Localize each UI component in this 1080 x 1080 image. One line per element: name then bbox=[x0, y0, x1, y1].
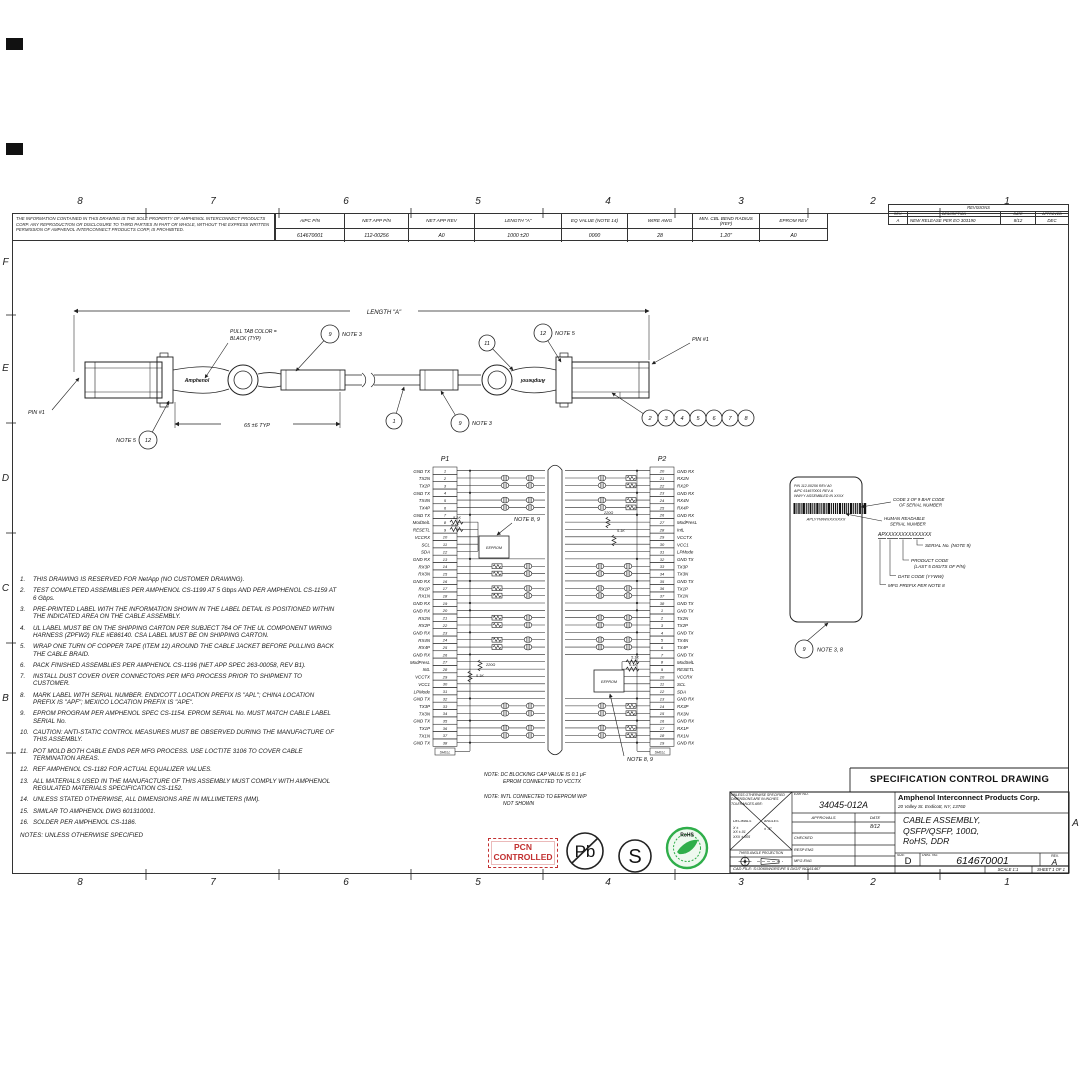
svg-text:1: 1 bbox=[661, 608, 663, 613]
svg-text:LPMode: LPMode bbox=[414, 689, 431, 694]
p1-pin-row: 33TX3P bbox=[419, 702, 457, 709]
p1-pin-row: 19GND RX bbox=[413, 599, 457, 606]
svg-text:3: 3 bbox=[661, 623, 664, 628]
svg-text:GND RX: GND RX bbox=[413, 557, 431, 562]
svg-text:IntL: IntL bbox=[423, 667, 431, 672]
zone-label-left: B bbox=[0, 691, 11, 705]
svg-text:3: 3 bbox=[444, 483, 447, 488]
svg-text:GND RX: GND RX bbox=[413, 653, 431, 658]
zone-label-right: A bbox=[1070, 816, 1080, 830]
p1-pin-row: 34TX3N bbox=[419, 710, 457, 717]
p1-pin-row: 22RX2P bbox=[419, 621, 457, 628]
svg-text:ModSelL: ModSelL bbox=[677, 660, 695, 665]
svg-text:6: 6 bbox=[661, 645, 664, 650]
p1-pin-row: 3TX2P bbox=[419, 482, 457, 489]
svg-text:RESETL: RESETL bbox=[677, 667, 695, 672]
tb-title-lines: CABLE ASSEMBLY, QSFP/QSFP, 100Ω, RoHS, D… bbox=[903, 815, 1067, 852]
p1-pin-row: 1GND TX bbox=[413, 467, 457, 474]
svg-text:VCC1: VCC1 bbox=[418, 682, 430, 687]
tb-approvals: APPROVALS bbox=[792, 815, 855, 822]
balloon-item-9: 9NOTE 3 bbox=[441, 391, 493, 432]
svg-text:14: 14 bbox=[660, 704, 665, 709]
svg-text:GND RX: GND RX bbox=[677, 491, 695, 496]
svg-text:22: 22 bbox=[442, 623, 448, 628]
p1-pin-row: 24RX4N bbox=[418, 636, 457, 643]
svg-text:GND TX: GND TX bbox=[413, 741, 431, 746]
svg-text:17: 17 bbox=[443, 586, 448, 591]
svg-text:5.1K: 5.1K bbox=[617, 529, 625, 533]
svg-text:TX2N: TX2N bbox=[419, 476, 431, 481]
svg-text:10: 10 bbox=[443, 535, 448, 540]
svg-text:34: 34 bbox=[660, 571, 665, 576]
zone-label-left: C bbox=[0, 581, 11, 595]
svg-text:19: 19 bbox=[660, 741, 665, 746]
p1-pin-row: 15RX3N bbox=[418, 570, 457, 577]
zone-label-bottom: 1 bbox=[999, 876, 1015, 889]
svg-text:NOTE 5: NOTE 5 bbox=[116, 438, 137, 444]
svg-text:GND RX: GND RX bbox=[413, 630, 431, 635]
tb-angles: ANGLES bbox=[764, 820, 791, 825]
svg-text:GND TX: GND TX bbox=[677, 557, 695, 562]
p1-pin-row: 11SCL bbox=[421, 541, 457, 548]
svg-text:GND RX: GND RX bbox=[413, 608, 431, 613]
svg-text:RX4N: RX4N bbox=[677, 498, 690, 503]
svg-text:4: 4 bbox=[444, 491, 447, 496]
tb-scale: SCALE 1:1 bbox=[986, 867, 1030, 873]
p1-pin-row: 31LPMode bbox=[414, 688, 457, 695]
balloon-item-3: 3 bbox=[658, 410, 674, 426]
svg-text:P1: P1 bbox=[441, 456, 450, 463]
svg-text:GND RX: GND RX bbox=[677, 469, 695, 474]
svg-text:RX4P: RX4P bbox=[419, 645, 431, 650]
svg-text:TX4P: TX4P bbox=[677, 645, 688, 650]
svg-text:RX3P: RX3P bbox=[677, 704, 689, 709]
p1-pin-row: 17RX1P bbox=[419, 585, 457, 592]
svg-text:TX4N: TX4N bbox=[677, 638, 689, 643]
svg-text:TX2P: TX2P bbox=[419, 483, 430, 488]
svg-text:4: 4 bbox=[680, 416, 683, 422]
svg-text:GND TX: GND TX bbox=[413, 491, 431, 496]
svg-text:38: 38 bbox=[443, 741, 448, 746]
svg-text:NOTE 8, 9: NOTE 8, 9 bbox=[514, 517, 540, 523]
p1-pin-row: 16GND RX bbox=[413, 577, 457, 584]
svg-text:TX1N: TX1N bbox=[419, 733, 431, 738]
svg-text:PIN #1: PIN #1 bbox=[28, 410, 45, 416]
zone-label-bottom: 2 bbox=[865, 876, 881, 889]
svg-text:24: 24 bbox=[442, 638, 448, 643]
p1-pin-row: 12SDA bbox=[421, 548, 457, 555]
svg-text:34: 34 bbox=[443, 711, 448, 716]
p2-pin-row: 17RX1P37TX1N18RX1N38GND TX19GND RXSHELLS… bbox=[413, 477, 1069, 873]
svg-text:LENGTH "A": LENGTH "A" bbox=[367, 310, 402, 316]
balloon-item-8: 8 bbox=[738, 410, 754, 426]
svg-text:Amphenol: Amphenol bbox=[520, 377, 546, 383]
svg-text:RX3N: RX3N bbox=[418, 572, 431, 577]
zone-label-left: D bbox=[0, 471, 11, 485]
svg-text:5.1K: 5.1K bbox=[631, 656, 639, 660]
svg-text:1: 1 bbox=[392, 419, 395, 425]
svg-text:EEPROM: EEPROM bbox=[486, 546, 503, 550]
zone-label-bottom: 3 bbox=[733, 876, 749, 889]
svg-text:35: 35 bbox=[443, 718, 448, 723]
p1-pin-row: 4GND TX bbox=[413, 489, 457, 496]
svg-text:RX1N: RX1N bbox=[677, 733, 690, 738]
svg-text:7: 7 bbox=[661, 652, 664, 657]
drawing-sheet: THE INFORMATION CONTAINED IN THIS DRAWIN… bbox=[0, 0, 1080, 1080]
svg-text:32: 32 bbox=[660, 557, 665, 562]
svg-text:GND RX: GND RX bbox=[677, 741, 695, 746]
p2-pin-row: 11SCL31LPMode12SDA32GND TX13GND RX33TX3P… bbox=[413, 477, 1069, 873]
svg-text:TX4P: TX4P bbox=[419, 506, 430, 511]
svg-text:VCC1: VCC1 bbox=[677, 542, 689, 547]
svg-text:SCL: SCL bbox=[677, 682, 686, 687]
svg-text:33: 33 bbox=[660, 564, 665, 569]
svg-text:12: 12 bbox=[660, 689, 665, 694]
svg-text:27: 27 bbox=[659, 520, 665, 525]
svg-text:11: 11 bbox=[484, 341, 490, 347]
p2-pin-row: 19GND RXSHELLSHELLNOTE: DC BLOCKING CAP … bbox=[435, 739, 695, 807]
svg-text:NOTE: INTL CONNECTED TO EEPRO: NOTE: INTL CONNECTED TO EEPROM W/P bbox=[484, 794, 587, 800]
svg-text:13: 13 bbox=[443, 557, 448, 562]
svg-text:18: 18 bbox=[443, 594, 448, 599]
svg-text:NOTE 3: NOTE 3 bbox=[342, 332, 363, 338]
svg-text:P2: P2 bbox=[658, 456, 667, 463]
p1-pin-row: 32GND TX bbox=[413, 695, 457, 702]
svg-text:9: 9 bbox=[328, 332, 331, 338]
svg-text:GND RX: GND RX bbox=[413, 601, 431, 606]
svg-text:TX3P: TX3P bbox=[677, 564, 688, 569]
svg-text:TX1N: TX1N bbox=[677, 594, 689, 599]
svg-text:GND TX: GND TX bbox=[677, 601, 695, 606]
svg-text:16: 16 bbox=[443, 579, 448, 584]
p1-pin-row: 28IntL bbox=[423, 665, 457, 672]
p2-pin-row: 9RESETL29VCCTX10VCCRX30VCC111SCL31LPMode… bbox=[413, 477, 1069, 873]
tb-row-mfg: MFG ENG bbox=[794, 859, 839, 866]
zone-label-left: E bbox=[0, 361, 11, 375]
svg-text:220Ω: 220Ω bbox=[485, 663, 495, 667]
p2-pin-row: 13GND RX33TX3P14RX3P34TX3N15RX3N35GND TX… bbox=[413, 477, 1069, 873]
svg-text:TX1P: TX1P bbox=[677, 586, 688, 591]
svg-text:ModPresL: ModPresL bbox=[677, 520, 698, 525]
svg-text:1: 1 bbox=[444, 469, 446, 474]
svg-text:PIN #1: PIN #1 bbox=[692, 337, 709, 343]
svg-text:18: 18 bbox=[660, 733, 665, 738]
p1-pin-row: 20GND RX bbox=[413, 607, 457, 614]
svg-text:21: 21 bbox=[659, 476, 664, 481]
svg-text:29: 29 bbox=[442, 674, 448, 679]
svg-text:TX2P: TX2P bbox=[677, 623, 688, 628]
svg-text:TX4N: TX4N bbox=[419, 498, 431, 503]
line-art: LENGTH "A"AmphenolAmphenol65 ±6 TYPPIN #… bbox=[0, 0, 1080, 1080]
p1-pin-row: 14RX3P bbox=[419, 563, 457, 570]
tb-date: 8/12 bbox=[855, 824, 895, 833]
svg-text:PULL TAB COLOR =: PULL TAB COLOR = bbox=[230, 329, 277, 335]
svg-text:RX2N: RX2N bbox=[677, 476, 690, 481]
svg-text:SERIAL No. (NOTE 9): SERIAL No. (NOTE 9) bbox=[925, 543, 971, 548]
zone-label-top: 6 bbox=[338, 195, 354, 208]
svg-text:9: 9 bbox=[802, 647, 805, 653]
svg-text:RX3P: RX3P bbox=[419, 564, 431, 569]
svg-text:15: 15 bbox=[443, 571, 448, 576]
p1-pin-row: 30VCC1 bbox=[418, 680, 457, 687]
zone-label-top: 2 bbox=[865, 195, 881, 208]
svg-text:9: 9 bbox=[444, 527, 447, 532]
svg-text:VCCTX: VCCTX bbox=[415, 675, 431, 680]
svg-text:GND TX: GND TX bbox=[413, 469, 431, 474]
p2-pin-row: 12SDA32GND TX13GND RX33TX3P14RX3P34TX3N1… bbox=[413, 477, 1069, 873]
tb-tol-header: UNLESS OTHERWISE SPECIFIED DIMENSIONS AR… bbox=[731, 793, 791, 809]
p1-pin-row: 10VCCRX bbox=[415, 533, 457, 540]
svg-text:11: 11 bbox=[660, 682, 664, 687]
svg-text:12: 12 bbox=[145, 438, 152, 444]
svg-text:31: 31 bbox=[443, 689, 447, 694]
svg-text:EPROM CONNECTED TO VCCTX: EPROM CONNECTED TO VCCTX bbox=[503, 779, 582, 785]
svg-text:EEPROM: EEPROM bbox=[601, 680, 618, 684]
svg-text:GND TX: GND TX bbox=[677, 630, 695, 635]
tb-sheet: SHEET 1 OF 1 bbox=[1033, 867, 1069, 873]
svg-text:GND RX: GND RX bbox=[677, 719, 695, 724]
svg-text:7: 7 bbox=[444, 513, 447, 518]
svg-text:28: 28 bbox=[659, 527, 665, 532]
zone-label-left: F bbox=[0, 255, 11, 269]
zone-label-bottom: 8 bbox=[72, 876, 88, 889]
svg-text:11: 11 bbox=[443, 542, 447, 547]
p1-pin-row: 25RX4P bbox=[419, 643, 457, 650]
svg-text:GND RX: GND RX bbox=[677, 513, 695, 518]
svg-text:8: 8 bbox=[661, 660, 664, 665]
svg-text:RX1N: RX1N bbox=[418, 594, 431, 599]
svg-text:19: 19 bbox=[443, 601, 448, 606]
p2-pin-row: 8ModSelL28IntL9RESETL29VCCTX10VCCRX30VCC… bbox=[413, 477, 1069, 873]
tb-address: 20 Valley St. Endicott, NY, 13760 bbox=[898, 804, 1066, 812]
svg-text:SDA: SDA bbox=[677, 689, 686, 694]
svg-text:36: 36 bbox=[660, 586, 665, 591]
tb-ear: 34045-012A bbox=[792, 799, 895, 812]
svg-text:GND RX: GND RX bbox=[677, 697, 695, 702]
svg-text:27: 27 bbox=[442, 660, 448, 665]
tb-decimals: DECIMALS bbox=[733, 820, 763, 825]
svg-text:VCCRX: VCCRX bbox=[677, 675, 693, 680]
svg-text:AIPC 614670001 REV A: AIPC 614670001 REV A bbox=[793, 489, 834, 493]
p2-pin-row: 10VCCRX30VCC111SCL31LPMode12SDA32GND TX1… bbox=[413, 477, 1069, 873]
zone-label-bottom: 7 bbox=[205, 876, 221, 889]
zone-label-top: 1 bbox=[999, 195, 1015, 208]
svg-text:GND TX: GND TX bbox=[677, 608, 695, 613]
svg-text:GND RX: GND RX bbox=[413, 579, 431, 584]
balloon-item-9: 9NOTE 3 bbox=[296, 325, 363, 371]
svg-text:TX2N: TX2N bbox=[677, 616, 689, 621]
svg-text:TX1P: TX1P bbox=[419, 726, 430, 731]
svg-text:RX1P: RX1P bbox=[677, 726, 689, 731]
p1-pin-row: 18RX1N bbox=[418, 592, 457, 599]
svg-text:ModSelL: ModSelL bbox=[413, 520, 431, 525]
svg-text:RX2P: RX2P bbox=[677, 483, 689, 488]
svg-text:SDA: SDA bbox=[421, 550, 430, 555]
p1-pin-row: 35GND TX bbox=[413, 717, 457, 724]
tb-date-label: DATE bbox=[855, 815, 895, 822]
svg-text:GND TX: GND TX bbox=[413, 513, 431, 518]
svg-text:CODE 3 OF 9 BAR CODE: CODE 3 OF 9 BAR CODE bbox=[893, 497, 944, 502]
svg-text:5: 5 bbox=[444, 498, 447, 503]
svg-text:22: 22 bbox=[659, 483, 665, 488]
svg-text:30: 30 bbox=[443, 682, 448, 687]
zone-label-bottom: 4 bbox=[600, 876, 616, 889]
zone-label-bottom: 5 bbox=[470, 876, 486, 889]
svg-text:IntL: IntL bbox=[677, 528, 685, 533]
p2-pin-row: 21RX2N3TX2P22RX2P4GND TX23GND RX5TX4N24R… bbox=[410, 474, 1069, 873]
svg-text:TX3N: TX3N bbox=[677, 572, 689, 577]
zone-label-bottom: 6 bbox=[338, 876, 354, 889]
svg-text:GND TX: GND TX bbox=[677, 579, 695, 584]
svg-text:37: 37 bbox=[443, 733, 448, 738]
svg-text:(LAST 5 DIGITS OF P/N): (LAST 5 DIGITS OF P/N) bbox=[914, 564, 966, 569]
svg-text:5: 5 bbox=[661, 638, 664, 643]
p2-pin-row: 18RX1N38GND TX19GND RXSHELLSHELLNOTE: DC… bbox=[413, 477, 1069, 873]
svg-text:2: 2 bbox=[660, 616, 664, 621]
p2-pin-row: 16GND RX36TX1P17RX1P37TX1N18RX1N38GND TX… bbox=[413, 477, 1069, 873]
p1-pin-row: 37TX1N bbox=[419, 732, 457, 739]
svg-text:NOTE 3, 8: NOTE 3, 8 bbox=[817, 648, 844, 654]
svg-text:35: 35 bbox=[660, 579, 665, 584]
p2-pin-row: 15RX3N35GND TX16GND RX36TX1P17RX1P37TX1N… bbox=[413, 477, 1069, 873]
label-detail: P/N 112-00256 REV A0AIPC 614670001 REV A… bbox=[790, 477, 971, 658]
svg-text:SERIAL NUMBER: SERIAL NUMBER bbox=[890, 522, 927, 527]
zone-label-top: 7 bbox=[205, 195, 221, 208]
p1-pin-row: 2TX2N bbox=[419, 474, 457, 481]
svg-text:SCL: SCL bbox=[421, 542, 430, 547]
svg-text:12: 12 bbox=[443, 549, 448, 554]
svg-text:220Ω: 220Ω bbox=[603, 511, 613, 515]
zone-label-top: 5 bbox=[470, 195, 486, 208]
tb-cad: CAD FILE: S:\3060WGRS\PE 5 DIGIT NO\6146… bbox=[733, 867, 983, 873]
svg-text:TX3N: TX3N bbox=[419, 711, 431, 716]
svg-text:RX3N: RX3N bbox=[677, 711, 690, 716]
svg-text:SHELL: SHELL bbox=[440, 750, 451, 754]
p1-pin-row: 5TX4N bbox=[419, 496, 457, 503]
p2-pin-row: 14RX3P34TX3N15RX3N35GND TX16GND RX36TX1P… bbox=[413, 477, 1069, 873]
svg-text:20: 20 bbox=[442, 608, 448, 613]
p1-pin-row: 13GND RX bbox=[413, 555, 457, 562]
balloon-item-7: 7 bbox=[722, 410, 738, 426]
svg-text:23: 23 bbox=[659, 491, 665, 496]
zone-label-top: 3 bbox=[733, 195, 749, 208]
svg-text:RX4P: RX4P bbox=[677, 506, 689, 511]
svg-text:29: 29 bbox=[659, 535, 665, 540]
p1-pin-row: 6TX4P bbox=[419, 504, 457, 511]
p1-pin-row: 27ModPresL bbox=[410, 658, 457, 665]
svg-text:23: 23 bbox=[442, 630, 448, 635]
svg-text:10: 10 bbox=[660, 674, 665, 679]
svg-text:APLYYWWXXXXXXX: APLYYWWXXXXXXX bbox=[806, 517, 846, 522]
svg-text:SHELL: SHELL bbox=[655, 750, 666, 754]
tb-third-angle: THIRD ANGLE PROJECTION bbox=[730, 851, 792, 857]
p1-pin-row: 38GND TX bbox=[413, 739, 457, 746]
p1-pin-row: 21RX2N bbox=[418, 614, 457, 621]
svg-text:RX4N: RX4N bbox=[418, 638, 431, 643]
p1-pin-row: 26GND RX bbox=[413, 651, 457, 658]
svg-text:5.1K: 5.1K bbox=[476, 674, 484, 678]
svg-text:MFG PREFIX PER NOTE 8: MFG PREFIX PER NOTE 8 bbox=[888, 583, 945, 588]
p1-pin-row: 36TX1P bbox=[419, 724, 457, 731]
zone-label-top: 8 bbox=[72, 195, 88, 208]
tb-row-checked: CHECKED bbox=[794, 836, 839, 843]
svg-text:31: 31 bbox=[660, 549, 664, 554]
svg-text:NOTE 8, 9: NOTE 8, 9 bbox=[627, 757, 653, 763]
balloon-item-5: 5 bbox=[690, 410, 706, 426]
svg-text:20: 20 bbox=[659, 469, 665, 474]
tb-company: Amphenol Interconnect Products Corp. bbox=[898, 794, 1066, 804]
tb-ear-label: EAR NO. bbox=[794, 793, 824, 798]
svg-text:28: 28 bbox=[442, 667, 448, 672]
svg-text:5.1K: 5.1K bbox=[629, 663, 637, 667]
tb-angles-val: ± .5° bbox=[764, 827, 791, 833]
p2-pin-row: 20GND RX2TX2N21RX2N3TX2P22RX2P4GND TX23G… bbox=[410, 467, 1069, 873]
svg-text:ModPresL: ModPresL bbox=[410, 660, 431, 665]
svg-text:P/N 112-00256 REV A0: P/N 112-00256 REV A0 bbox=[794, 484, 832, 488]
zone-label-top: 4 bbox=[600, 195, 616, 208]
svg-text:26: 26 bbox=[659, 513, 665, 518]
svg-text:RESETL: RESETL bbox=[413, 528, 431, 533]
svg-text:VCCRX: VCCRX bbox=[415, 535, 431, 540]
svg-text:GND TX: GND TX bbox=[413, 719, 431, 724]
svg-text:4: 4 bbox=[661, 630, 664, 635]
svg-text:RX1P: RX1P bbox=[419, 586, 431, 591]
balloon-item-6: 6 bbox=[706, 410, 722, 426]
balloon-item-4: 4 bbox=[674, 410, 690, 426]
svg-text:13: 13 bbox=[660, 696, 665, 701]
svg-text:WWYY ASSEMBLED IN XXXX: WWYY ASSEMBLED IN XXXX bbox=[794, 494, 844, 498]
svg-text:24: 24 bbox=[659, 498, 665, 503]
svg-text:HUMAN READABLE: HUMAN READABLE bbox=[884, 516, 925, 521]
tb-row-resp: RESP ENG bbox=[794, 848, 839, 855]
svg-text:38: 38 bbox=[660, 601, 665, 606]
svg-text:GND TX: GND TX bbox=[677, 653, 695, 658]
svg-text:OF SERIAL NUMBER: OF SERIAL NUMBER bbox=[899, 503, 943, 508]
svg-text:30: 30 bbox=[660, 542, 665, 547]
svg-text:17: 17 bbox=[660, 726, 665, 731]
svg-text:RX2P: RX2P bbox=[419, 623, 431, 628]
svg-text:LPMode: LPMode bbox=[677, 550, 694, 555]
svg-text:21: 21 bbox=[442, 616, 447, 621]
svg-text:9: 9 bbox=[661, 667, 664, 672]
svg-text:26: 26 bbox=[442, 652, 448, 657]
svg-text:NOTE 5: NOTE 5 bbox=[555, 331, 576, 337]
svg-text:GND TX: GND TX bbox=[413, 697, 431, 702]
svg-text:36: 36 bbox=[443, 726, 448, 731]
balloon-item-1: 1 bbox=[386, 387, 404, 429]
svg-text:25: 25 bbox=[659, 505, 665, 510]
svg-text:9: 9 bbox=[458, 421, 461, 427]
svg-text:8: 8 bbox=[444, 520, 447, 525]
svg-text:NOT SHOWN: NOT SHOWN bbox=[503, 801, 534, 807]
svg-text:BLACK (TYP): BLACK (TYP) bbox=[230, 336, 261, 342]
svg-text:37: 37 bbox=[660, 594, 665, 599]
svg-text:RX2N: RX2N bbox=[418, 616, 431, 621]
svg-text:5.1K: 5.1K bbox=[451, 523, 459, 527]
svg-text:33: 33 bbox=[443, 704, 448, 709]
p1-pin-row: 23GND RX bbox=[413, 629, 457, 636]
p1-pin-row: 29VCCTX bbox=[415, 673, 457, 680]
balloon-item-12: 12NOTE 5 bbox=[534, 324, 576, 362]
balloon-item-12: 12NOTE 5 bbox=[116, 401, 169, 449]
svg-text:NOTE 3: NOTE 3 bbox=[472, 421, 493, 427]
svg-text:TX3P: TX3P bbox=[419, 704, 430, 709]
svg-text:15: 15 bbox=[660, 711, 665, 716]
svg-text:Amphenol: Amphenol bbox=[184, 378, 210, 384]
svg-text:32: 32 bbox=[443, 696, 448, 701]
p1-pin-row: 7GND TX bbox=[413, 511, 457, 518]
svg-text:VCCTX: VCCTX bbox=[677, 535, 693, 540]
